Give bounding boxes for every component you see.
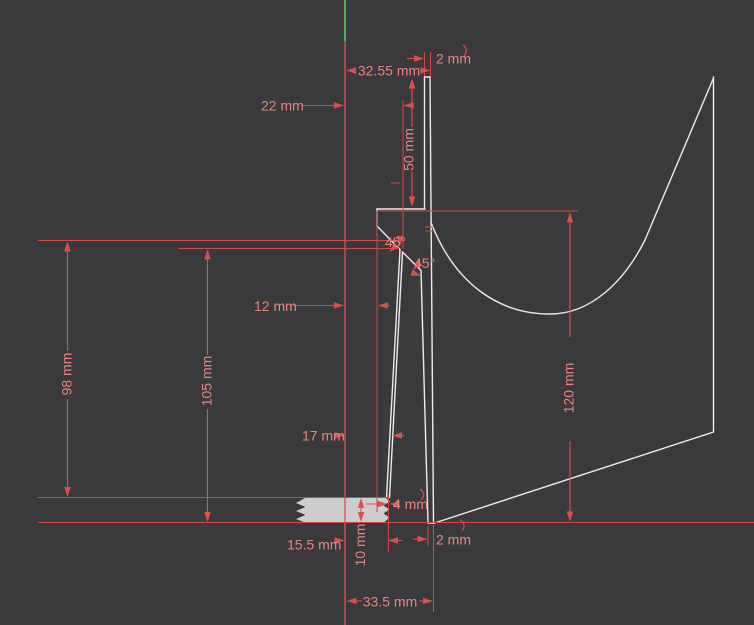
part-profile[interactable] — [377, 77, 714, 524]
dim-angle-inner-label[interactable]: 45° — [414, 255, 435, 271]
dimension-height-105[interactable]: 105 mm — [199, 250, 215, 523]
tube-outer-right-line[interactable] — [430, 77, 434, 523]
section-strip[interactable] — [296, 498, 390, 523]
blade-inner-line[interactable] — [390, 252, 403, 498]
dim-base-height-label[interactable]: 10 mm — [352, 524, 368, 567]
dimension-offset-22[interactable]: 22 mm — [261, 98, 414, 114]
sweep-curve[interactable] — [431, 78, 714, 314]
dimension-angle-outer[interactable]: 45° — [385, 234, 406, 254]
dim-height-105-label[interactable]: 105 mm — [199, 356, 215, 407]
dim-offset-22-label[interactable]: 22 mm — [261, 98, 304, 114]
dim-height-120-label[interactable]: 120 mm — [561, 363, 577, 414]
dim-bottom-wall-label[interactable]: 2 mm — [436, 532, 471, 548]
dim-angle-outer-label[interactable]: 45° — [385, 234, 406, 250]
sketch-canvas[interactable]: 2 mm 32.55 mm 22 mm 50 mm 45° 45° — [0, 0, 754, 625]
dim-top-wall-label[interactable]: 2 mm — [436, 51, 471, 67]
dimension-height-98[interactable]: 98 mm — [59, 242, 75, 498]
dim-top-radius-label[interactable]: 32.55 mm — [358, 63, 420, 79]
dim-bottom-radius-label[interactable]: 33.5 mm — [363, 594, 417, 610]
dimension-bottom-radius[interactable]: 33.5 mm — [347, 594, 434, 610]
dimension-offset-12[interactable]: 12 mm — [254, 298, 390, 314]
dim-offset-12-label[interactable]: 12 mm — [254, 298, 297, 314]
right-body-edge[interactable] — [433, 77, 714, 524]
dim-offset-17-label[interactable]: 17 mm — [302, 428, 345, 444]
dimension-bottom-wall[interactable]: 2 mm — [413, 520, 471, 548]
blade-outer-line[interactable] — [387, 250, 401, 498]
dim-neck-height-label[interactable]: 50 mm — [401, 128, 417, 171]
dim-height-98-label[interactable]: 98 mm — [59, 353, 75, 396]
dimension-top-radius[interactable]: 32.55 mm — [346, 63, 431, 79]
cad-sketch-viewport[interactable]: 2 mm 32.55 mm 22 mm 50 mm 45° 45° — [0, 0, 754, 625]
dim-offset-155-label[interactable]: 15.5 mm — [287, 537, 341, 553]
wall-inner-line[interactable] — [421, 271, 428, 524]
dimension-offset-17[interactable]: 17 mm — [302, 428, 404, 444]
dim-gap-4-label[interactable]: 4 mm — [393, 496, 428, 512]
dimension-height-120[interactable]: 120 mm — [561, 213, 577, 522]
